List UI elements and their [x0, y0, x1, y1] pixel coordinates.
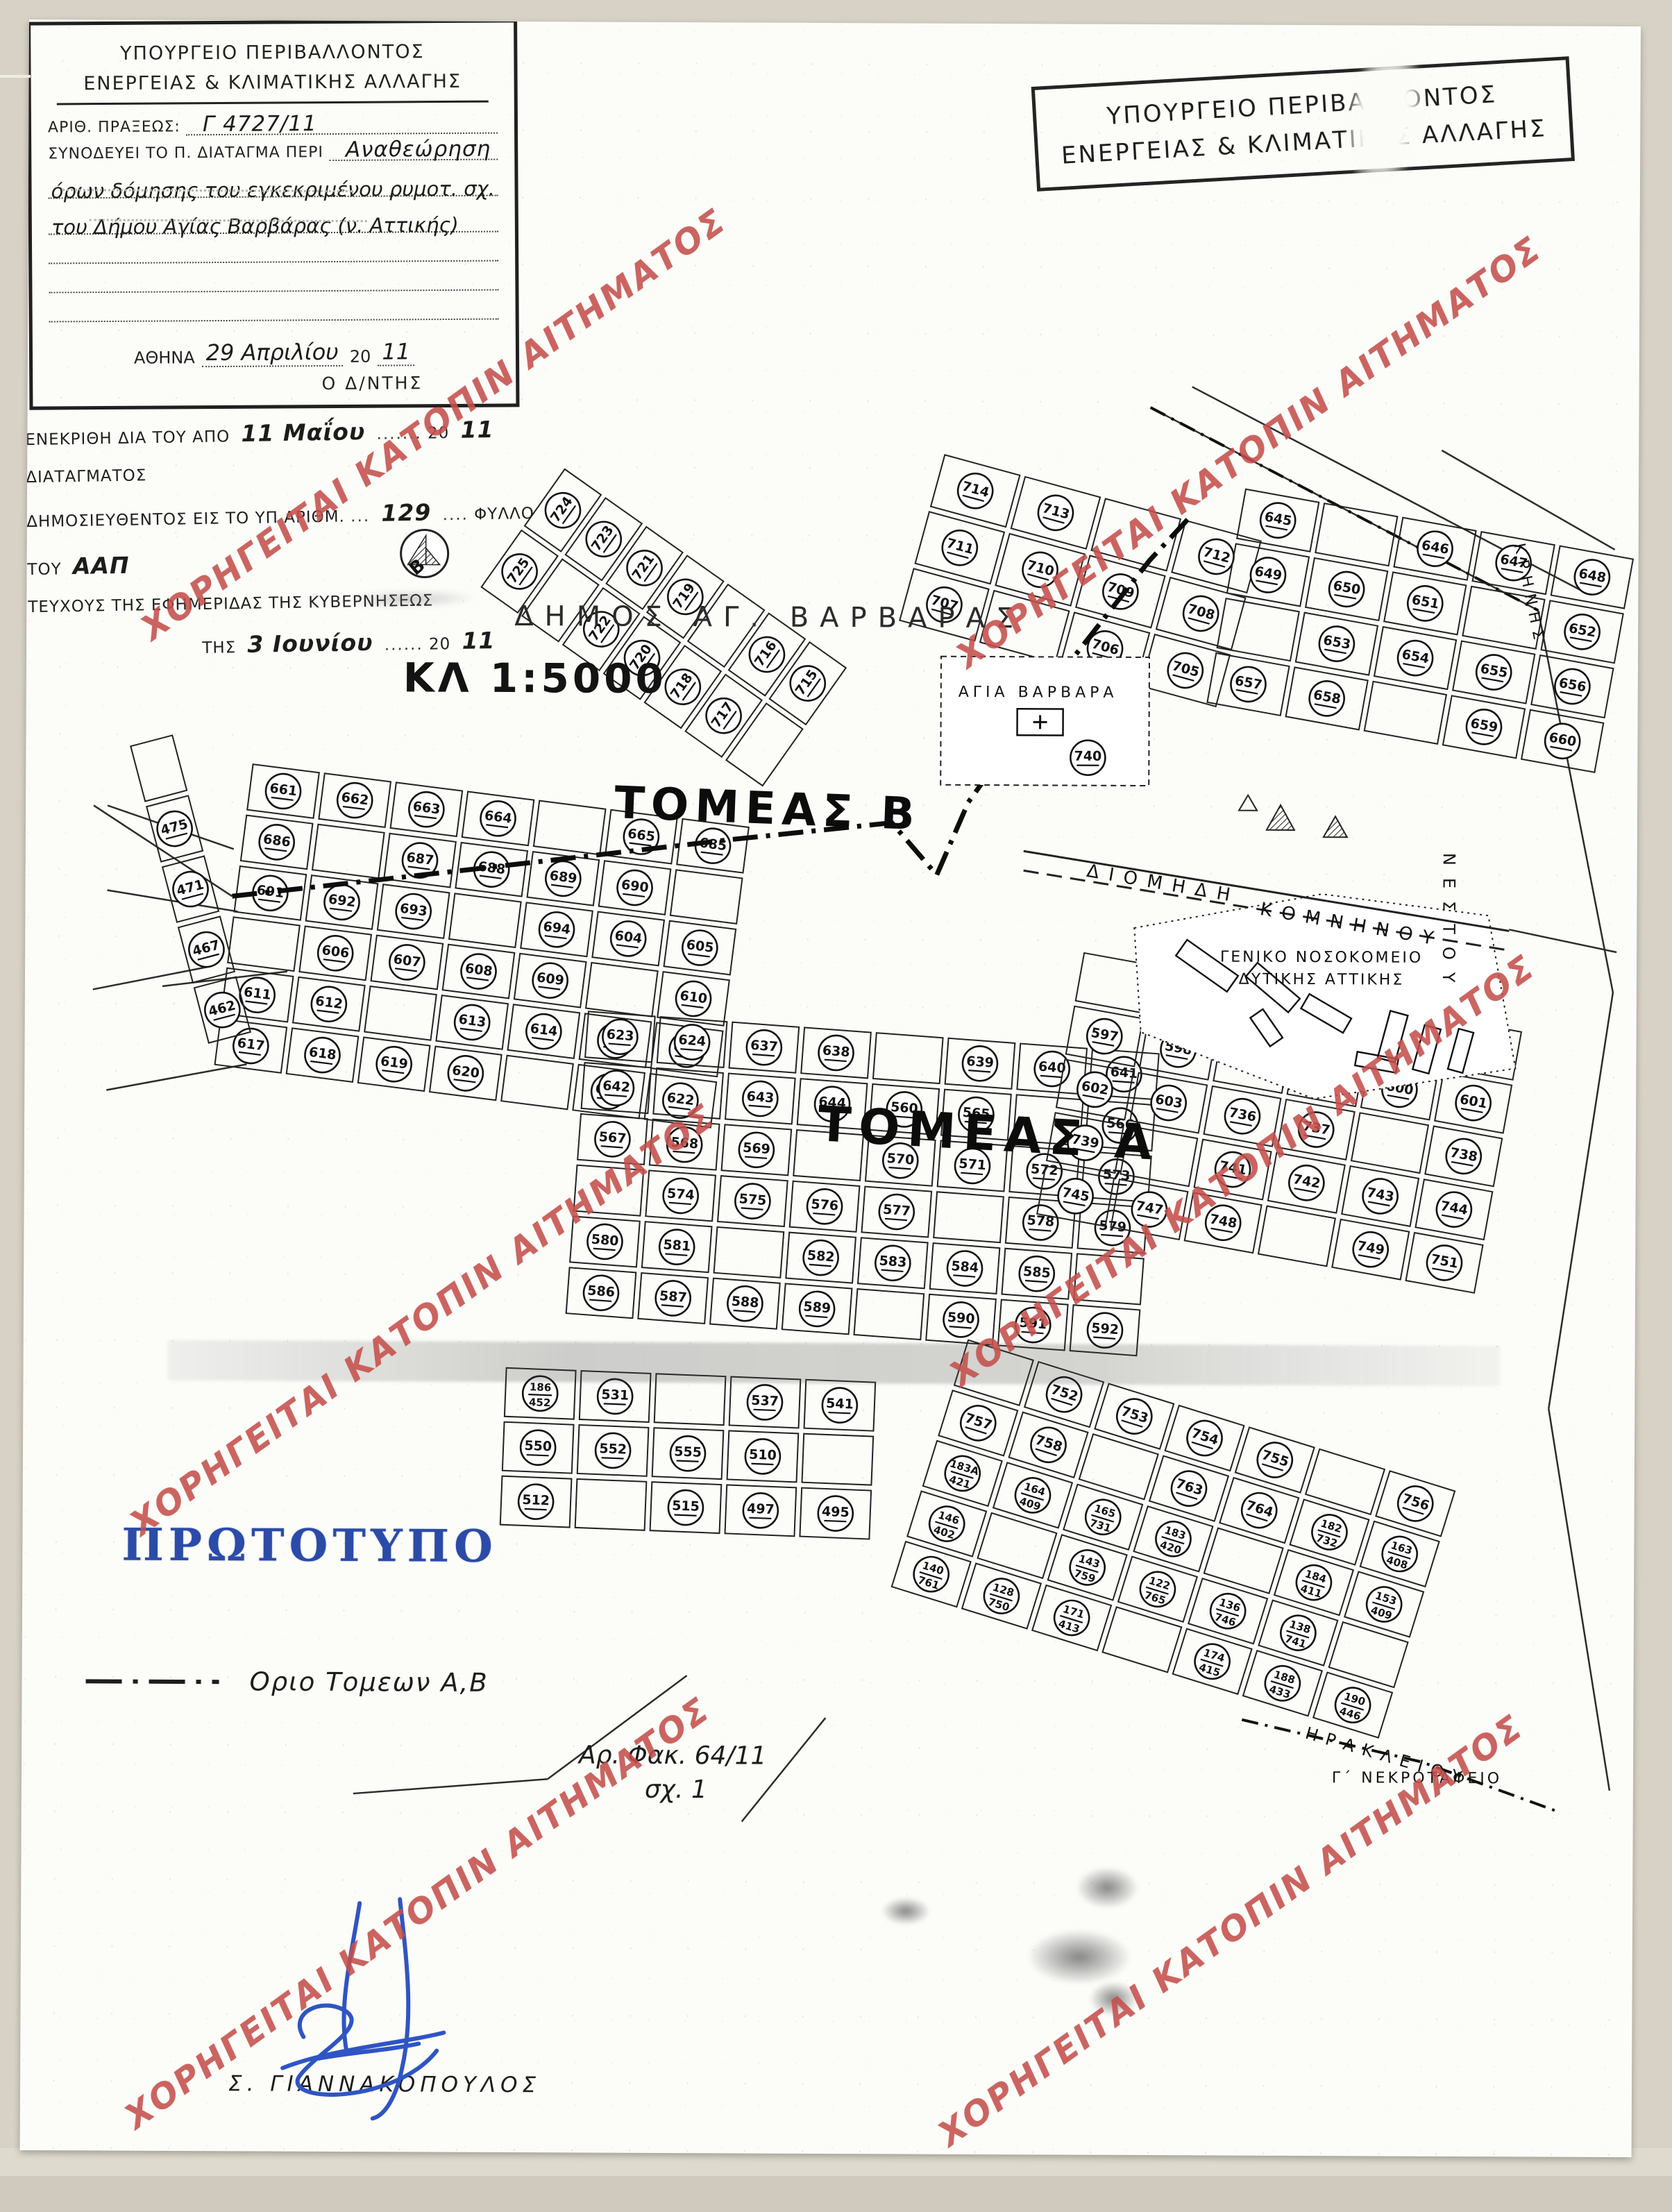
legend-label: Οριο Τομεων Α,Β	[249, 1666, 488, 1698]
svg-text:591: 591	[1019, 1315, 1047, 1333]
original-stamp: ΠΡΩΤΟΤΥΠΟ	[121, 1519, 498, 1573]
act-number-row: ΑΡΙΘ. ΠΡΑΞΕΩΣ: Γ 4727/11	[48, 114, 498, 136]
svg-text:586: 586	[587, 1283, 616, 1300]
subject-writeline: όρων δόμησης του εγκεκριμένου ρυμοτ. σχ.	[48, 164, 498, 199]
svg-text:576: 576	[811, 1197, 839, 1214]
divider	[57, 101, 489, 105]
scanned-document-page: { "watermark": { "text": "ΧΟΡΗΓΕΙΤΑΙ ΚΑΤ…	[0, 0, 1672, 2212]
ink-blob	[1076, 1867, 1138, 1909]
svg-text:584: 584	[951, 1258, 979, 1276]
accompanies-label: ΣΥΝΟΔΕΥΕΙ ΤΟ Π. ΔΙΑΤΑΓΜΑ ΠΕΡΙ	[48, 144, 323, 162]
svg-text:624: 624	[678, 1032, 707, 1049]
svg-text:592: 592	[1091, 1320, 1120, 1337]
svg-text:512: 512	[522, 1492, 550, 1509]
svg-text:497: 497	[747, 1501, 775, 1518]
file-note-line1: Αρ. Φακ. 64/11	[579, 1741, 766, 1770]
subject-line3: του Δήμου Αγίας Βαρβάρας (ν. Αττικής)	[51, 213, 459, 239]
svg-text:ΔΥΤΙΚΗΣ ΑΤΤΙΚΗΣ: ΔΥΤΙΚΗΣ ΑΤΤΙΚΗΣ	[1239, 971, 1405, 989]
act-number-label: ΑΡΙΘ. ΠΡΑΞΕΩΣ:	[48, 118, 180, 136]
svg-text:588: 588	[731, 1294, 759, 1311]
ink-blob	[881, 1897, 930, 1925]
svg-text:537: 537	[751, 1393, 779, 1410]
sector-boundary-symbol	[83, 1673, 222, 1689]
map-scale-note: ΚΛ 1:5000	[403, 654, 667, 702]
svg-text:552: 552	[599, 1441, 627, 1458]
svg-text:ΔΙΟΜΗΔΗ: ΔΙΟΜΗΔΗ	[1085, 861, 1241, 907]
svg-text:637: 637	[750, 1038, 778, 1055]
svg-text:638: 638	[822, 1042, 850, 1060]
svg-text:567: 567	[598, 1129, 627, 1147]
svg-text:623: 623	[606, 1027, 634, 1044]
svg-text:577: 577	[882, 1202, 911, 1219]
dotted-leader: Αναθεώρηση	[329, 140, 498, 161]
svg-text:585: 585	[1022, 1264, 1051, 1281]
ink-blob	[1089, 1982, 1138, 2016]
svg-text:ΓΕΝΙΚΟ ΝΟΣΟΚΟΜΕΙΟ: ΓΕΝΙΚΟ ΝΟΣΟΚΟΜΕΙΟ	[1220, 949, 1423, 967]
svg-text:452: 452	[529, 1396, 551, 1409]
svg-text:590: 590	[947, 1310, 975, 1327]
svg-text:582: 582	[807, 1248, 835, 1265]
svg-text:643: 643	[746, 1089, 775, 1106]
scanned-map-sheet: 7257247237227217207197187177167157147137…	[20, 19, 1641, 2157]
svg-text:541: 541	[826, 1396, 854, 1412]
svg-text:568: 568	[670, 1135, 699, 1152]
dotted-leader: Γ 4727/11	[186, 114, 498, 135]
subject-line1: Αναθεώρηση	[346, 137, 491, 162]
svg-text:639: 639	[966, 1054, 995, 1071]
file-note-line2: σχ. 1	[645, 1775, 766, 1805]
scanner-bed-band-dark	[0, 2176, 1672, 2212]
director-signature	[255, 1894, 484, 2124]
empty-dotted-line	[49, 291, 498, 323]
svg-text:581: 581	[663, 1237, 691, 1254]
svg-text:740: 740	[1074, 749, 1101, 764]
svg-text:186: 186	[530, 1381, 552, 1394]
svg-text:569: 569	[742, 1140, 770, 1157]
photocopy-streak	[167, 1340, 1500, 1386]
empty-dotted-line	[49, 262, 498, 294]
svg-text:550: 550	[524, 1438, 552, 1455]
approval-stamp-box: ΥΠΟΥΡΓΕΙΟ ΠΕΡΙΒΑΛΛΟΝΤΟΣ ΕΝΕΡΓΕΙΑΣ & ΚΛΙΜ…	[27, 19, 519, 410]
svg-text:510: 510	[749, 1447, 777, 1464]
svg-text:515: 515	[672, 1498, 700, 1514]
svg-text:531: 531	[601, 1387, 630, 1403]
svg-text:575: 575	[738, 1191, 767, 1208]
ink-blob	[1027, 1929, 1131, 1985]
scanner-bed-scratch	[0, 75, 31, 78]
svg-text:587: 587	[659, 1288, 687, 1306]
svg-text:495: 495	[822, 1504, 850, 1521]
approval-title1: ΥΠΟΥΡΓΕΙΟ ΠΕΡΙΒΑΛΛΟΝΤΟΣ	[47, 37, 497, 69]
file-note: Αρ. Φακ. 64/11 σχ. 1	[579, 1741, 767, 1804]
legend: Οριο Τομεων Α,Β	[83, 1666, 488, 1698]
svg-text:589: 589	[803, 1299, 831, 1316]
svg-text:555: 555	[674, 1444, 702, 1460]
svg-text:ΝΕΣΤΟΥ: ΝΕΣΤΟΥ	[1439, 853, 1459, 995]
act-number-value: Γ 4727/11	[203, 111, 317, 137]
subject-writeline: του Δήμου Αγίας Βαρβάρας (ν. Αττικής)	[49, 201, 498, 235]
accompanies-row: ΣΥΝΟΔΕΥΕΙ ΤΟ Π. ΔΙΑΤΑΓΜΑ ΠΕΡΙ Αναθεώρηση	[48, 140, 498, 162]
approval-title2: ΕΝΕΡΓΕΙΑΣ & ΚΛΙΜΑΤΙΚΗΣ ΑΛΛΑΓΗΣ	[47, 67, 497, 99]
svg-text:ΑΓΙΑ ΒΑΡΒΑΡΑ: ΑΓΙΑ ΒΑΡΒΑΡΑ	[959, 684, 1118, 702]
svg-text:642: 642	[602, 1078, 630, 1095]
map-title: ΔΗΜΟΣ ΑΓ. ΒΑΡΒΑΡΑΣ	[514, 600, 1024, 634]
correction-fluid-smudge	[1335, 37, 1436, 197]
svg-text:580: 580	[591, 1232, 619, 1249]
svg-text:574: 574	[666, 1185, 695, 1203]
ministry-stamp: ΥΠΟΥΡΓΕΙΟ ΠΕΡΙΒΑΛΛΟΝΤΟΣ ΕΝΕΡΓΕΙΑΣ & ΚΛΙΜ…	[1031, 56, 1575, 192]
svg-text:583: 583	[879, 1253, 907, 1270]
